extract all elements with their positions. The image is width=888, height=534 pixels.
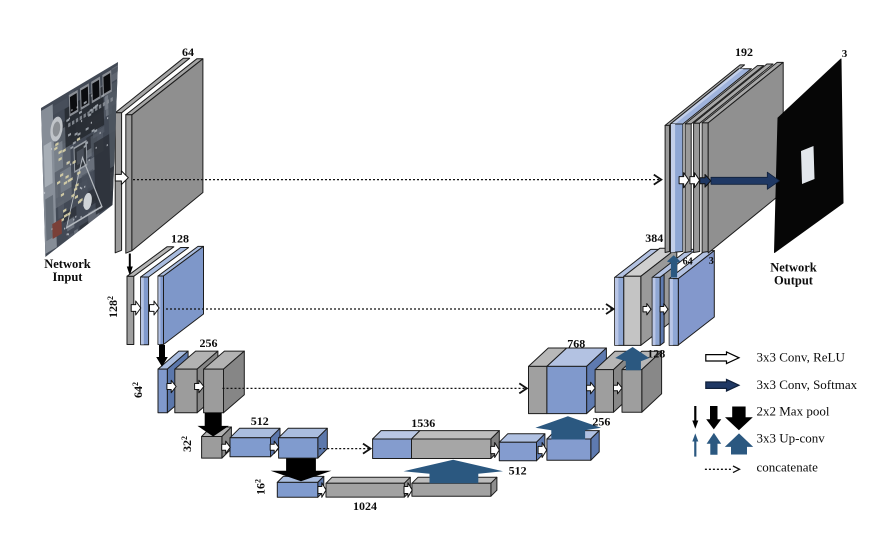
svg-text:256: 256 xyxy=(200,336,218,350)
svg-text:64: 64 xyxy=(683,257,693,268)
svg-text:384: 384 xyxy=(645,231,663,245)
svg-text:3x3 Up-conv: 3x3 Up-conv xyxy=(757,431,826,446)
svg-text:Input: Input xyxy=(53,270,84,284)
svg-text:3x3 Conv, ReLU: 3x3 Conv, ReLU xyxy=(757,350,846,365)
svg-text:2x2 Max pool: 2x2 Max pool xyxy=(757,404,830,419)
svg-text:Output: Output xyxy=(774,274,814,288)
svg-text:concatenate: concatenate xyxy=(757,460,819,475)
svg-text:Network: Network xyxy=(44,257,91,271)
svg-text:3x3 Conv, Softmax: 3x3 Conv, Softmax xyxy=(757,377,858,392)
svg-text:3: 3 xyxy=(709,256,714,267)
svg-text:768: 768 xyxy=(567,337,585,351)
svg-text:3: 3 xyxy=(842,48,848,60)
svg-text:256: 256 xyxy=(592,414,610,428)
svg-text:128: 128 xyxy=(171,232,189,246)
svg-text:Network: Network xyxy=(770,261,817,275)
svg-text:1024: 1024 xyxy=(353,499,377,513)
svg-text:1536: 1536 xyxy=(411,416,435,430)
svg-text:192: 192 xyxy=(735,45,753,59)
svg-text:64: 64 xyxy=(182,45,194,59)
svg-text:512: 512 xyxy=(509,463,527,477)
svg-text:512: 512 xyxy=(251,414,269,428)
svg-text:128: 128 xyxy=(647,347,665,361)
